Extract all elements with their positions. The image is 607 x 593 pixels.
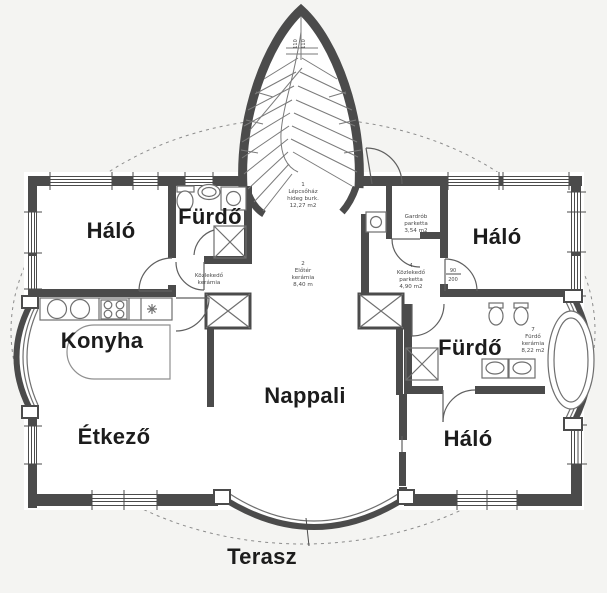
floor-plan-drawing: 110 110 <box>0 0 607 593</box>
room-finish: kerámia <box>292 274 315 281</box>
room-label-bedroom-top-left: Háló <box>87 218 136 243</box>
room-area: 8,22 m2 <box>521 348 544 354</box>
room-finish: kerámia <box>522 340 545 347</box>
room-label-living-room: Nappali <box>264 383 346 408</box>
bidet <box>514 307 528 325</box>
room-name: Közlekedő <box>397 270 426 276</box>
room-name: Közlekedő <box>195 273 224 279</box>
dim-door-height: 200 <box>448 277 458 283</box>
open-door-leaf <box>399 452 406 486</box>
star-symbol <box>147 304 157 314</box>
room-label-terrace: Terasz <box>227 544 297 569</box>
room-finish: hideg burk. <box>287 196 319 202</box>
room-name: Előtér <box>295 267 312 274</box>
room-name: Gardrób <box>405 213 428 220</box>
room-name: Lépcsőház <box>288 188 317 195</box>
room-area: 3,54 m2 <box>404 228 427 234</box>
floor-plan: 110 110 <box>0 0 607 593</box>
wardrobe-appliance <box>366 212 386 232</box>
toilet <box>489 307 503 325</box>
room-area: 12,27 m2 <box>290 203 317 209</box>
room-label-bathroom-top-left: Fürdő <box>178 204 242 229</box>
room-finish: parketta <box>404 221 428 227</box>
schedule-wardrobe: Gardrób parketta 3,54 m2 <box>404 213 428 234</box>
room-label-bedroom-top-right: Háló <box>473 224 522 249</box>
dim-door-width: 90 <box>450 268 456 274</box>
room-label-bathroom-right: Fürdő <box>438 335 502 360</box>
dim-110-left: 110 <box>293 39 299 49</box>
sink <box>198 185 220 200</box>
room-finish: parketta <box>399 277 423 283</box>
dim-110-right: 110 <box>301 39 307 49</box>
room-no: 7 <box>531 327 535 333</box>
schedule-corridor-left: Közlekedő kerámia <box>195 273 224 286</box>
room-name: Fürdő <box>525 334 541 340</box>
bathtub <box>548 311 594 409</box>
room-label-kitchen: Konyha <box>61 328 144 353</box>
room-area: 4,90 m2 <box>399 284 422 290</box>
room-no: 1 <box>301 182 305 188</box>
room-finish: kerámia <box>198 279 221 286</box>
room-label-bedroom-bottom-right: Háló <box>444 426 493 451</box>
room-no: 4 <box>409 263 413 269</box>
room-label-dining-room: Étkező <box>78 424 151 449</box>
washing-machine <box>366 212 386 232</box>
room-no: 2 <box>301 261 305 267</box>
room-area: 8,40 m <box>293 282 313 288</box>
